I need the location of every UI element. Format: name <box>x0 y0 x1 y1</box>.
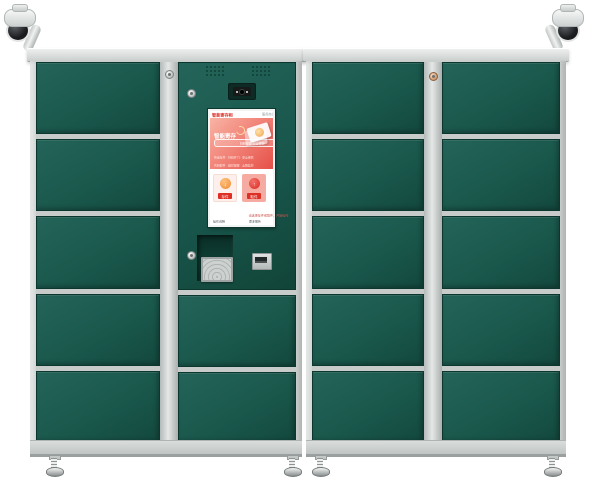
pickup-button[interactable]: 取件 <box>247 193 261 199</box>
coin-icon <box>254 127 265 138</box>
locker-door[interactable] <box>312 294 424 366</box>
action-cards: ↓ 存件 ↑ <box>213 174 266 202</box>
cabinet-top-cap <box>27 48 305 62</box>
locker-door[interactable] <box>36 294 160 366</box>
hero-feature-line: 快速存件 · 扫码开门 · 安全保管 <box>214 155 254 159</box>
locker-door[interactable] <box>442 294 560 366</box>
door-column <box>442 62 560 443</box>
locker-door[interactable] <box>36 139 160 211</box>
camera-cap <box>12 4 28 12</box>
service-lock-lower[interactable] <box>187 251 196 260</box>
key-lock[interactable] <box>165 70 174 79</box>
screen-footer: 操作说明 更多服务 <box>210 217 273 225</box>
speaker-grille-right <box>251 65 272 77</box>
door-column <box>312 62 424 443</box>
screen-brand: 智能寄存柜 <box>212 111 233 117</box>
cabinet-right <box>306 48 566 457</box>
screen-hero: 智能寄存 扫码存取 安全便捷 快速存件 · 扫码开门 · 安全保管 凭码取件 ·… <box>210 118 273 169</box>
door-column <box>178 295 296 443</box>
hero-feature-line: 凭码取件 · 超时提醒 · 全程监控 <box>214 163 254 167</box>
locker-product-image: 智能寄存柜 服务热线 智能寄存 扫码存取 安全便捷 快速存件 · 扫码开门 · … <box>0 0 613 489</box>
deposit-button[interactable]: 存件 <box>218 193 232 199</box>
cabinet-body <box>306 61 566 444</box>
locker-door[interactable] <box>178 372 296 444</box>
deposit-icon: ↓ <box>220 178 231 189</box>
pickup-icon: ↑ <box>249 178 260 189</box>
locker-door[interactable] <box>312 216 424 288</box>
locker-door[interactable] <box>312 62 424 134</box>
pickup-glyph: ↑ <box>253 181 256 187</box>
camera-cap <box>560 4 576 12</box>
screen-footer-left: 操作说明 <box>213 219 225 223</box>
divider-strip <box>424 62 442 443</box>
screen-header: 智能寄存柜 服务热线 <box>210 111 273 118</box>
locker-door[interactable] <box>442 216 560 288</box>
cabinet-top-cap <box>303 48 569 62</box>
locker-door[interactable] <box>36 216 160 288</box>
locker-door[interactable] <box>442 139 560 211</box>
deposit-button-label: 存件 <box>221 193 228 198</box>
locker-door[interactable] <box>36 62 160 134</box>
leveling-foot <box>45 455 63 476</box>
service-lock-upper[interactable] <box>187 89 196 98</box>
pickup-button-label: 取件 <box>250 193 257 198</box>
screen-header-meta: 服务热线 <box>262 112 273 117</box>
receipt-slot <box>252 253 272 270</box>
cabinet-base <box>30 440 302 457</box>
deposit-card[interactable]: ↓ 存件 <box>213 174 237 202</box>
qr-scanner-window <box>201 257 233 282</box>
slot-opening <box>255 257 267 263</box>
locker-door[interactable] <box>178 295 296 367</box>
key-lock[interactable] <box>429 72 438 81</box>
door-column <box>36 62 160 443</box>
pickup-card[interactable]: ↑ 取件 <box>242 174 266 202</box>
cabinet-body: 智能寄存柜 服务热线 智能寄存 扫码存取 安全便捷 快速存件 · 扫码开门 · … <box>30 61 302 444</box>
scanner-recess <box>197 235 233 281</box>
ir-led-icon <box>246 91 248 93</box>
divider-strip <box>160 62 178 443</box>
locker-door[interactable] <box>36 371 160 443</box>
locker-door[interactable] <box>442 371 560 443</box>
face-camera-module <box>228 83 256 100</box>
leveling-foot <box>283 455 301 476</box>
camera-lens-icon <box>240 90 244 94</box>
leveling-foot <box>543 455 561 476</box>
speaker-grille-left <box>205 65 226 77</box>
locker-door[interactable] <box>312 139 424 211</box>
locker-door[interactable] <box>442 62 560 134</box>
locker-door[interactable] <box>312 371 424 443</box>
screen-footer-right: 更多服务 <box>249 219 261 223</box>
leveling-foot <box>311 455 329 476</box>
ir-led-icon <box>236 91 238 93</box>
touchscreen[interactable]: 智能寄存柜 服务热线 智能寄存 扫码存取 安全便捷 快速存件 · 扫码开门 · … <box>208 109 275 227</box>
camera-sensor-bar <box>233 87 251 96</box>
cabinet-left: 智能寄存柜 服务热线 智能寄存 扫码存取 安全便捷 快速存件 · 扫码开门 · … <box>30 48 302 457</box>
deposit-glyph: ↓ <box>224 181 227 187</box>
cabinet-base <box>306 440 566 457</box>
kiosk-panel: 智能寄存柜 服务热线 智能寄存 扫码存取 安全便捷 快速存件 · 扫码开门 · … <box>178 62 296 290</box>
screen-action-sheet: ↓ 存件 ↑ <box>210 169 273 225</box>
control-column: 智能寄存柜 服务热线 智能寄存 扫码存取 安全便捷 快速存件 · 扫码开门 · … <box>178 62 296 443</box>
